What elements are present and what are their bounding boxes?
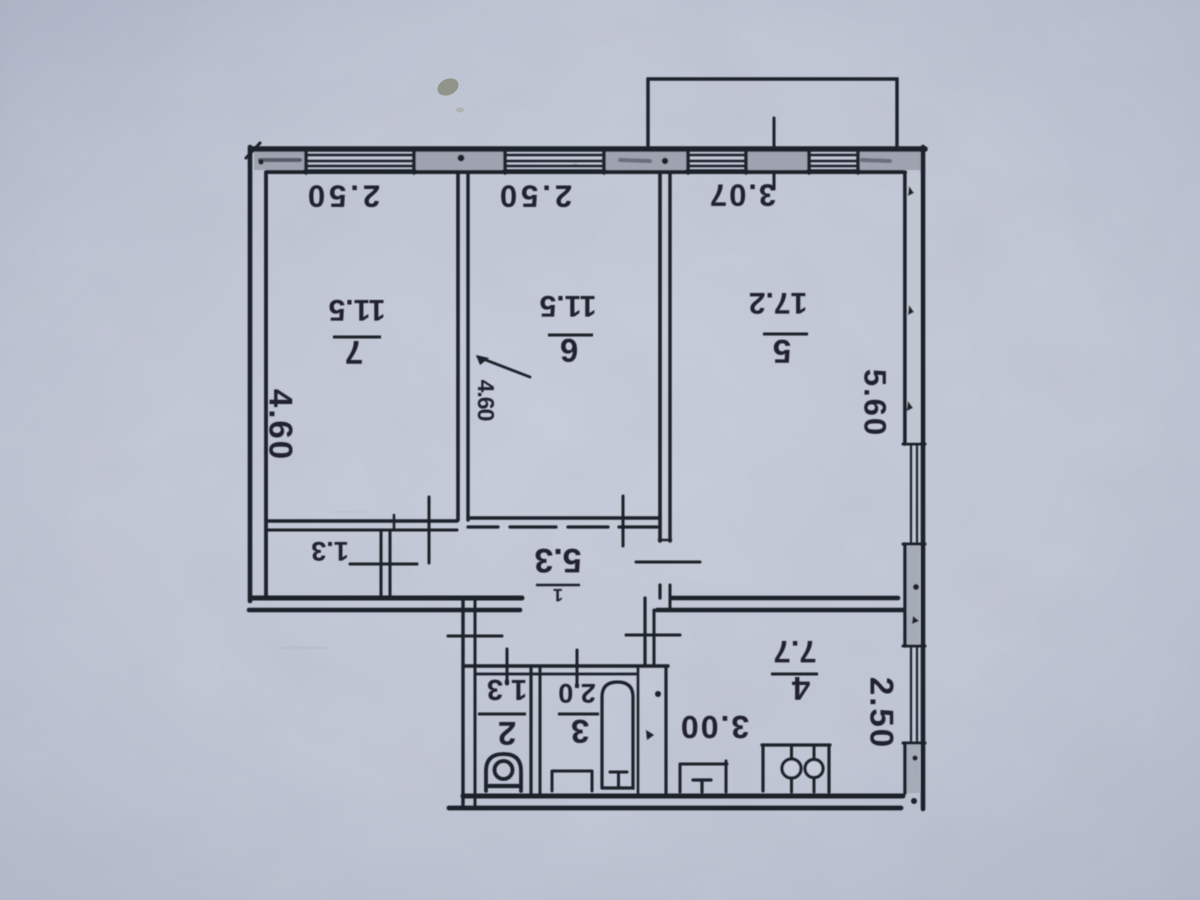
svg-text:4.60: 4.60: [263, 389, 300, 461]
svg-text:3.00: 3.00: [679, 709, 749, 745]
svg-text:11.5: 11.5: [329, 293, 386, 326]
svg-text:2: 2: [498, 715, 516, 752]
svg-text:3.07: 3.07: [708, 178, 776, 213]
svg-text:5.3: 5.3: [534, 541, 581, 579]
svg-text:6: 6: [560, 332, 578, 369]
svg-text:2.50: 2.50: [496, 179, 572, 214]
svg-text:4: 4: [791, 670, 810, 707]
svg-text:2.50: 2.50: [864, 677, 901, 749]
svg-text:1: 1: [553, 585, 563, 605]
svg-text:4.60: 4.60: [473, 380, 499, 421]
svg-text:1.3: 1.3: [487, 673, 527, 705]
svg-text:7.7: 7.7: [773, 634, 816, 669]
svg-text:5.60: 5.60: [858, 369, 893, 437]
svg-text:17.2: 17.2: [749, 286, 807, 319]
svg-text:7: 7: [345, 334, 363, 371]
svg-text:1.3: 1.3: [311, 536, 349, 566]
svg-text:3: 3: [571, 713, 589, 750]
svg-text:11.5: 11.5: [540, 289, 597, 322]
svg-text:5: 5: [773, 333, 791, 370]
svg-text:2.0: 2.0: [558, 678, 596, 708]
svg-text:2.50: 2.50: [304, 179, 380, 214]
